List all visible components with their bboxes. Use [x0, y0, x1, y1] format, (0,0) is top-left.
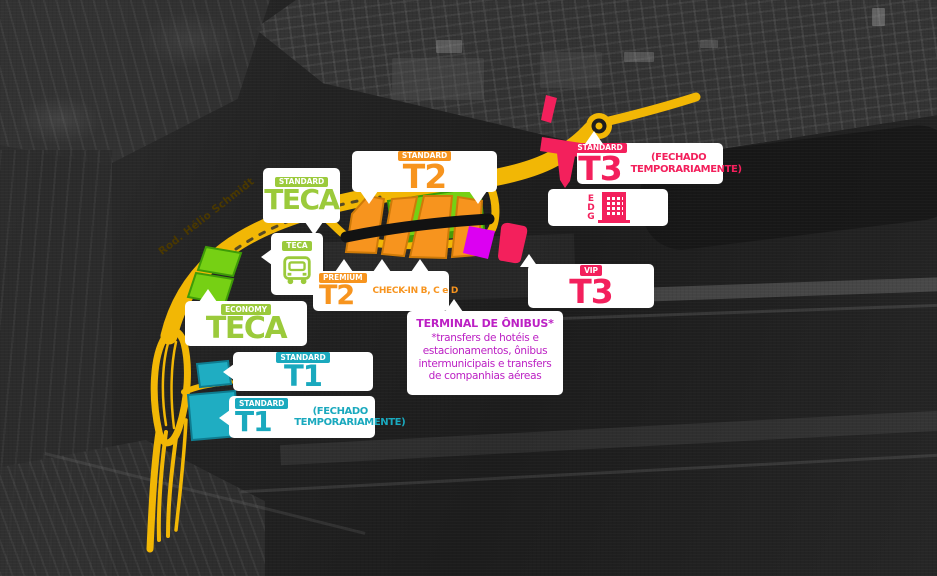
t2-standard-title: T2: [403, 161, 446, 192]
pointer-arrow: [520, 254, 538, 267]
edg-title: EDG: [586, 194, 595, 221]
bus-front-icon: [280, 253, 314, 287]
pointer-arrow: [360, 191, 378, 204]
teca-bus-badge: TECA: [282, 241, 311, 252]
pointer-arrow: [469, 191, 487, 204]
callout-t1-closed: STANDARD T1 (FECHADO TEMPORARIAMENTE): [229, 396, 375, 438]
pointer-arrow: [335, 259, 353, 272]
pointer-arrow: [261, 249, 272, 265]
teca-economy-title: TECA: [206, 315, 286, 344]
pointer-arrow: [411, 259, 429, 272]
teca-standard-title: TECA: [264, 187, 338, 214]
t3-standard-title: T3: [578, 153, 621, 184]
callout-t1-standard: STANDARD T1: [233, 352, 373, 391]
t3-standard-closed-note: (FECHADO TEMPORARIAMENTE): [631, 152, 727, 175]
callout-teca-standard: STANDARD TECA: [263, 168, 340, 223]
callout-t3-standard: STANDARD T3 (FECHADO TEMPORARIAMENTE): [577, 143, 723, 184]
bus-terminal-description: *transfers de hotéis e estacionamentos, …: [412, 332, 558, 383]
pointer-arrow: [445, 299, 463, 312]
callout-bus-terminal: TERMINAL DE ÔNIBUS* *transfers de hotéis…: [407, 311, 563, 395]
pointer-arrow: [219, 410, 230, 426]
t1-closed-note: (FECHADO TEMPORARIAMENTE): [294, 406, 386, 429]
callout-t2-standard: STANDARD T2: [352, 151, 497, 192]
bus-terminal-title: TERMINAL DE ÔNIBUS*: [412, 317, 558, 330]
t2-premium-title: T2: [319, 283, 354, 309]
map-vector-layer: [0, 0, 937, 576]
callout-edg: EDG: [548, 189, 668, 226]
callout-teca-economy: ECONOMY TECA: [185, 301, 307, 346]
t1-standard-title: T1: [284, 363, 322, 391]
pointer-arrow: [199, 289, 217, 302]
callout-t2-premium: PREMIUM T2 CHECK-IN B, C e D: [313, 271, 449, 311]
pointer-arrow: [585, 131, 603, 144]
t3-vip-title: T3: [569, 276, 612, 307]
t1-closed-title: T1: [235, 409, 272, 436]
t2-premium-checkin-note: CHECK-IN B, C e D: [373, 286, 459, 296]
parking-garage-building-icon: [598, 192, 630, 223]
pointer-arrow: [223, 364, 234, 380]
callout-t3-vip: VIP T3: [528, 264, 654, 308]
airport-map-canvas[interactable]: Rod. Hélio Schmidt STANDARD TECA STANDAR…: [0, 0, 937, 576]
pointer-arrow: [373, 259, 391, 272]
